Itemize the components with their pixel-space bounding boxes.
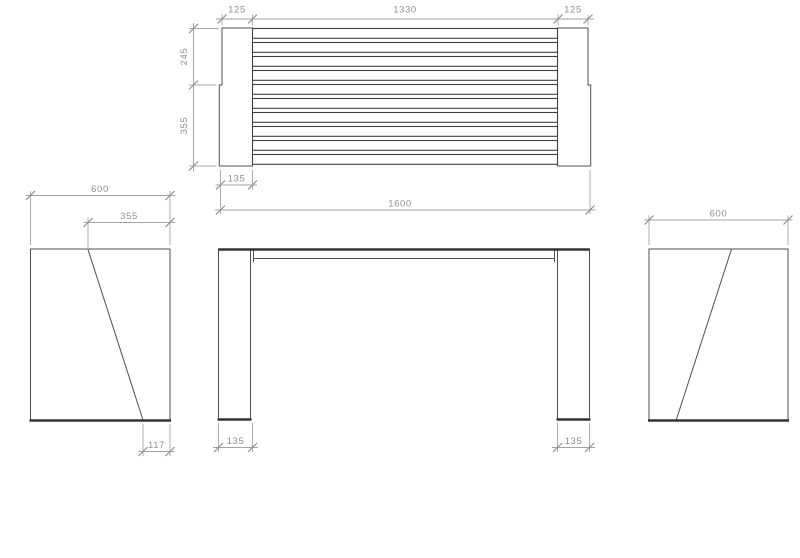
front-left-leg [219, 249, 251, 419]
left-side-panel [31, 249, 171, 421]
dim-right-end-label: 125 [564, 5, 582, 16]
dim-right-leg-width-label: 135 [565, 436, 583, 447]
left-side-slope-bottom-dimension: 117 [139, 424, 175, 456]
drawing-canvas: 125 1330 125 245 355 [0, 0, 800, 558]
front-underside-line [254, 250, 555, 262]
dim-slat-span-label: 1330 [393, 5, 417, 16]
dim-depth-label: 600 [91, 184, 109, 195]
slat [253, 29, 558, 39]
slat [253, 57, 558, 67]
slat [253, 113, 558, 123]
front-left-leg-dimension: 135 [213, 423, 258, 452]
dim-depth-label: 600 [710, 209, 728, 220]
dim-slope-top-label: 355 [120, 211, 138, 222]
plan-left-dimension-chain: 245 355 [179, 23, 219, 172]
plan-left-end-support [219, 28, 252, 166]
dim-left-end-label: 125 [228, 5, 246, 16]
plan-slats [253, 29, 558, 165]
right-side-depth-dimension: 600 [645, 209, 793, 246]
left-side-view: 600 355 117 [26, 184, 175, 456]
slat [253, 85, 558, 95]
dim-left-leg-width-label: 135 [227, 436, 245, 447]
slat [253, 71, 558, 81]
plan-top-dimension-chain: 125 1330 125 [216, 5, 594, 26]
slat [253, 155, 558, 165]
dim-overall-length-label: 1600 [388, 199, 412, 210]
plan-view: 125 1330 125 245 355 [179, 5, 596, 215]
dim-back-depth-label: 355 [179, 117, 190, 135]
plan-bottom-dimension-chain: 135 1600 [215, 170, 596, 215]
left-side-slope-top-dimension: 355 [84, 211, 176, 249]
dim-end-width-label: 135 [228, 174, 246, 185]
slat [253, 43, 558, 53]
dim-front-depth-label: 245 [179, 48, 190, 66]
front-view: 135 135 [213, 249, 595, 452]
front-right-leg [558, 249, 590, 419]
front-right-leg-dimension: 135 [552, 423, 595, 452]
slat [253, 99, 558, 109]
dim-slope-bottom-label: 117 [148, 440, 165, 451]
left-side-depth-dimension: 600 [26, 184, 175, 245]
right-side-panel [649, 249, 788, 421]
right-side-view: 600 [645, 209, 793, 421]
drawing-sheet: 125 1330 125 245 355 [0, 0, 800, 558]
plan-right-end-support [558, 28, 591, 166]
plan-outline [219, 28, 590, 166]
slat [253, 141, 558, 151]
slat [253, 127, 558, 137]
